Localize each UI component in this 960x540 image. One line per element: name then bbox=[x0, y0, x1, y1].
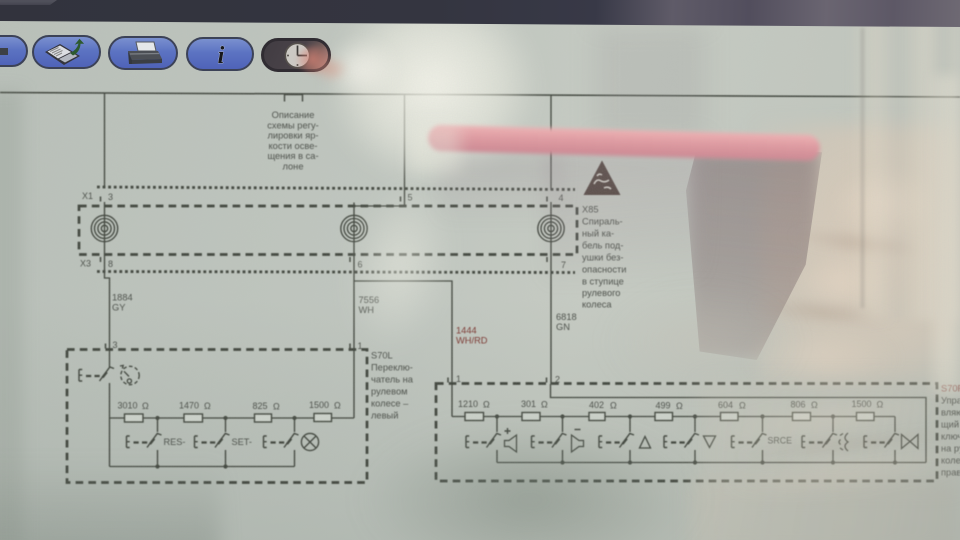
svg-text:i: i bbox=[218, 43, 225, 69]
